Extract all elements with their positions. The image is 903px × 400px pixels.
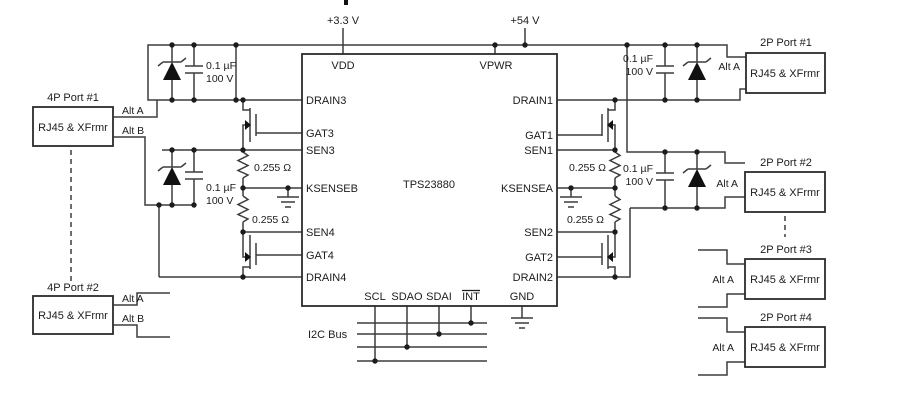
pin-sen3: SEN3 <box>306 145 335 157</box>
mosfet-gat4 <box>243 232 256 277</box>
resistor-right-1 <box>610 152 620 178</box>
port-title: 2P Port #3 <box>760 244 812 256</box>
port-title: 4P Port #2 <box>47 282 99 294</box>
cap-right-2 <box>656 152 674 208</box>
mosfet-gat3 <box>243 100 256 150</box>
tvs-diode-right-2 <box>683 152 711 208</box>
ground-ksenseb <box>277 188 299 207</box>
wire-port3-lower-stub <box>698 294 745 307</box>
port-4p-2: 4P Port #2 RJ45 & XFrmr Alt A Alt B <box>33 282 144 334</box>
alt-a-label: Alt A <box>712 274 734 286</box>
wire-drain1 <box>557 89 746 100</box>
resistor-left-1 <box>238 152 248 178</box>
supply-54v-label: +54 V <box>510 15 540 27</box>
wire-port4-lower-stub <box>698 362 745 375</box>
cap-right-1 <box>656 45 674 100</box>
cap-left-2 <box>185 150 203 205</box>
cap-left-1 <box>185 45 203 100</box>
pin-ksenseb: KSENSEB <box>306 183 358 195</box>
alt-a-label: Alt A <box>712 342 734 354</box>
port-2p-4: 2P Port #4 RJ45 & XFrmr Alt A <box>712 312 825 367</box>
pin-vpwr: VPWR <box>480 60 513 72</box>
port-2p-1: 2P Port #1 RJ45 & XFrmr Alt A <box>718 37 825 93</box>
pin-drain3: DRAIN3 <box>306 95 346 107</box>
port-2p-3: 2P Port #3 RJ45 & XFrmr Alt A <box>712 244 825 299</box>
rj45-label: RJ45 & XFrmr <box>750 342 820 354</box>
port-2p-2: 2P Port #2 RJ45 & XFrmr Alt A <box>716 157 825 212</box>
cap-left-2-value: 0.1 µF <box>206 182 236 194</box>
tvs-body <box>688 62 706 80</box>
resistor-right-2 <box>610 196 620 222</box>
resistor-left-2-value: 0.255 Ω <box>252 214 289 226</box>
rj45-label: RJ45 & XFrmr <box>750 187 820 199</box>
mosfet-gat1 <box>602 100 615 150</box>
pin-gat3: GAT3 <box>306 128 334 140</box>
pin-sen2: SEN2 <box>524 227 553 239</box>
cap-right-2-value: 0.1 µF <box>623 163 653 175</box>
wire-i2c-bus-lines <box>357 323 487 361</box>
wire-port4-upper-stub <box>698 318 745 332</box>
pin-drain2: DRAIN2 <box>513 272 553 284</box>
tvs-diode-right-1 <box>683 45 711 100</box>
alt-b-label: Alt B <box>122 313 144 325</box>
port-title: 2P Port #2 <box>760 157 812 169</box>
rj45-label: RJ45 & XFrmr <box>38 122 108 134</box>
alt-a-label: Alt A <box>122 293 144 305</box>
cap-right-1-voltage: 100 V <box>626 66 653 78</box>
cap-left-1-value: 0.1 µF <box>206 60 236 72</box>
port-title: 2P Port #1 <box>760 37 812 49</box>
ground-ic-gnd <box>511 318 533 328</box>
pin-sdao: SDAO <box>391 291 423 303</box>
page-header-tick <box>344 0 348 5</box>
pin-sen4: SEN4 <box>306 227 335 239</box>
mosfet-lines <box>602 232 615 277</box>
schematic-canvas: TPS23880 VDD VPWR DRAIN3 GAT3 SEN3 KSENS… <box>0 0 903 400</box>
rj45-label: RJ45 & XFrmr <box>750 68 820 80</box>
tps23880-application-schematic: TPS23880 VDD VPWR DRAIN3 GAT3 SEN3 KSENS… <box>0 0 903 400</box>
cap-right-2-voltage: 100 V <box>626 176 653 188</box>
alt-a-label: Alt A <box>718 61 740 73</box>
port-title: 4P Port #1 <box>47 92 99 104</box>
tvs-body <box>163 62 181 80</box>
pin-vdd: VDD <box>331 60 354 72</box>
wire-port3-upper-stub <box>698 250 745 264</box>
mosfet-gat2 <box>602 232 615 277</box>
port-title: 2P Port #4 <box>760 312 812 324</box>
cap-left-2-voltage: 100 V <box>206 195 233 207</box>
tvs-diode-left-2 <box>158 150 186 205</box>
ic-part-number: TPS23880 <box>403 179 455 191</box>
pin-sen1: SEN1 <box>524 145 553 157</box>
pin-gnd: GND <box>510 291 535 303</box>
alt-a-label: Alt A <box>716 178 738 190</box>
resistor-right-1-value: 0.255 Ω <box>569 162 606 174</box>
i2c-bus-label: I2C Bus <box>308 329 348 341</box>
wire-port2-return <box>630 197 745 208</box>
alt-a-label: Alt A <box>122 105 144 117</box>
wire-port2l-alt-b-stub <box>113 325 170 337</box>
resistor-left-2 <box>238 196 248 222</box>
rj45-label: RJ45 & XFrmr <box>750 274 820 286</box>
pin-gat1: GAT1 <box>525 130 553 142</box>
pin-gat2: GAT2 <box>525 252 553 264</box>
pin-sdai: SDAI <box>426 291 452 303</box>
pin-drain1: DRAIN1 <box>513 95 553 107</box>
pin-ksensea: KSENSEA <box>501 183 554 195</box>
tvs-diode-left-1 <box>158 45 186 100</box>
wire-port1-alt-b <box>113 137 194 205</box>
tvs-body <box>688 169 706 187</box>
pin-scl: SCL <box>364 291 385 303</box>
ground-ksensea <box>560 188 582 207</box>
alt-b-label: Alt B <box>122 125 144 137</box>
port-4p-1: 4P Port #1 RJ45 & XFrmr Alt A Alt B <box>33 92 144 146</box>
tvs-body <box>163 167 181 185</box>
rj45-label: RJ45 & XFrmr <box>38 310 108 322</box>
cap-right-1-value: 0.1 µF <box>623 53 653 65</box>
pin-int: INT <box>462 291 480 303</box>
pin-drain4: DRAIN4 <box>306 272 346 284</box>
pin-gat4: GAT4 <box>306 250 334 262</box>
supply-3v3-label: +3.3 V <box>327 15 360 27</box>
cap-left-1-voltage: 100 V <box>206 73 233 85</box>
mosfet-lines <box>243 232 256 277</box>
resistor-left-1-value: 0.255 Ω <box>254 162 291 174</box>
resistor-right-2-value: 0.255 Ω <box>567 214 604 226</box>
